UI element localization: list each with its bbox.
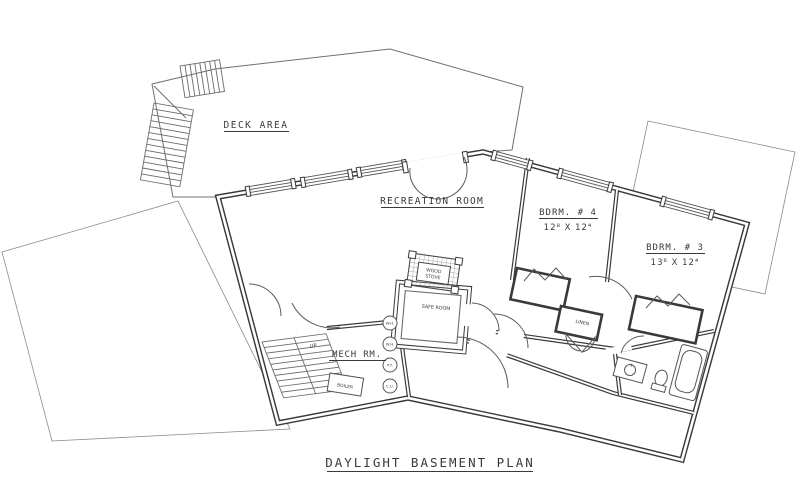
drawing-title: DAYLIGHT BASEMENT PLAN bbox=[325, 455, 535, 472]
daylight-basement-plan-drawing: WOOD STOVE UP W.H. bbox=[0, 0, 800, 490]
floor-plan-canvas: WOOD STOVE UP W.H. bbox=[0, 0, 800, 490]
deck-stairs bbox=[140, 60, 224, 187]
title-text: DAYLIGHT BASEMENT PLAN bbox=[325, 455, 535, 470]
bdrm4-dimensions: 12⁸ X 12⁴ bbox=[544, 223, 593, 233]
equipment-tag: W.H. bbox=[386, 321, 395, 326]
mech-room-label: MECH RM. bbox=[332, 350, 382, 360]
equipment-tag: W.H. bbox=[386, 342, 395, 347]
bdrm3-label: BDRM. # 3 bbox=[646, 243, 704, 253]
recreation-room-label: RECREATION ROOM bbox=[380, 196, 484, 207]
safe-room-walls bbox=[392, 282, 473, 352]
equipment-tag: C.U. bbox=[386, 384, 394, 389]
deck-area-label: DECK AREA bbox=[224, 120, 289, 131]
equipment-tag: P.T. bbox=[387, 363, 393, 368]
bdrm4-label: BDRM. # 4 bbox=[539, 208, 597, 218]
up-label: UP bbox=[309, 343, 317, 350]
bdrm3-dimensions: 13⁶ X 12⁴ bbox=[651, 258, 700, 268]
